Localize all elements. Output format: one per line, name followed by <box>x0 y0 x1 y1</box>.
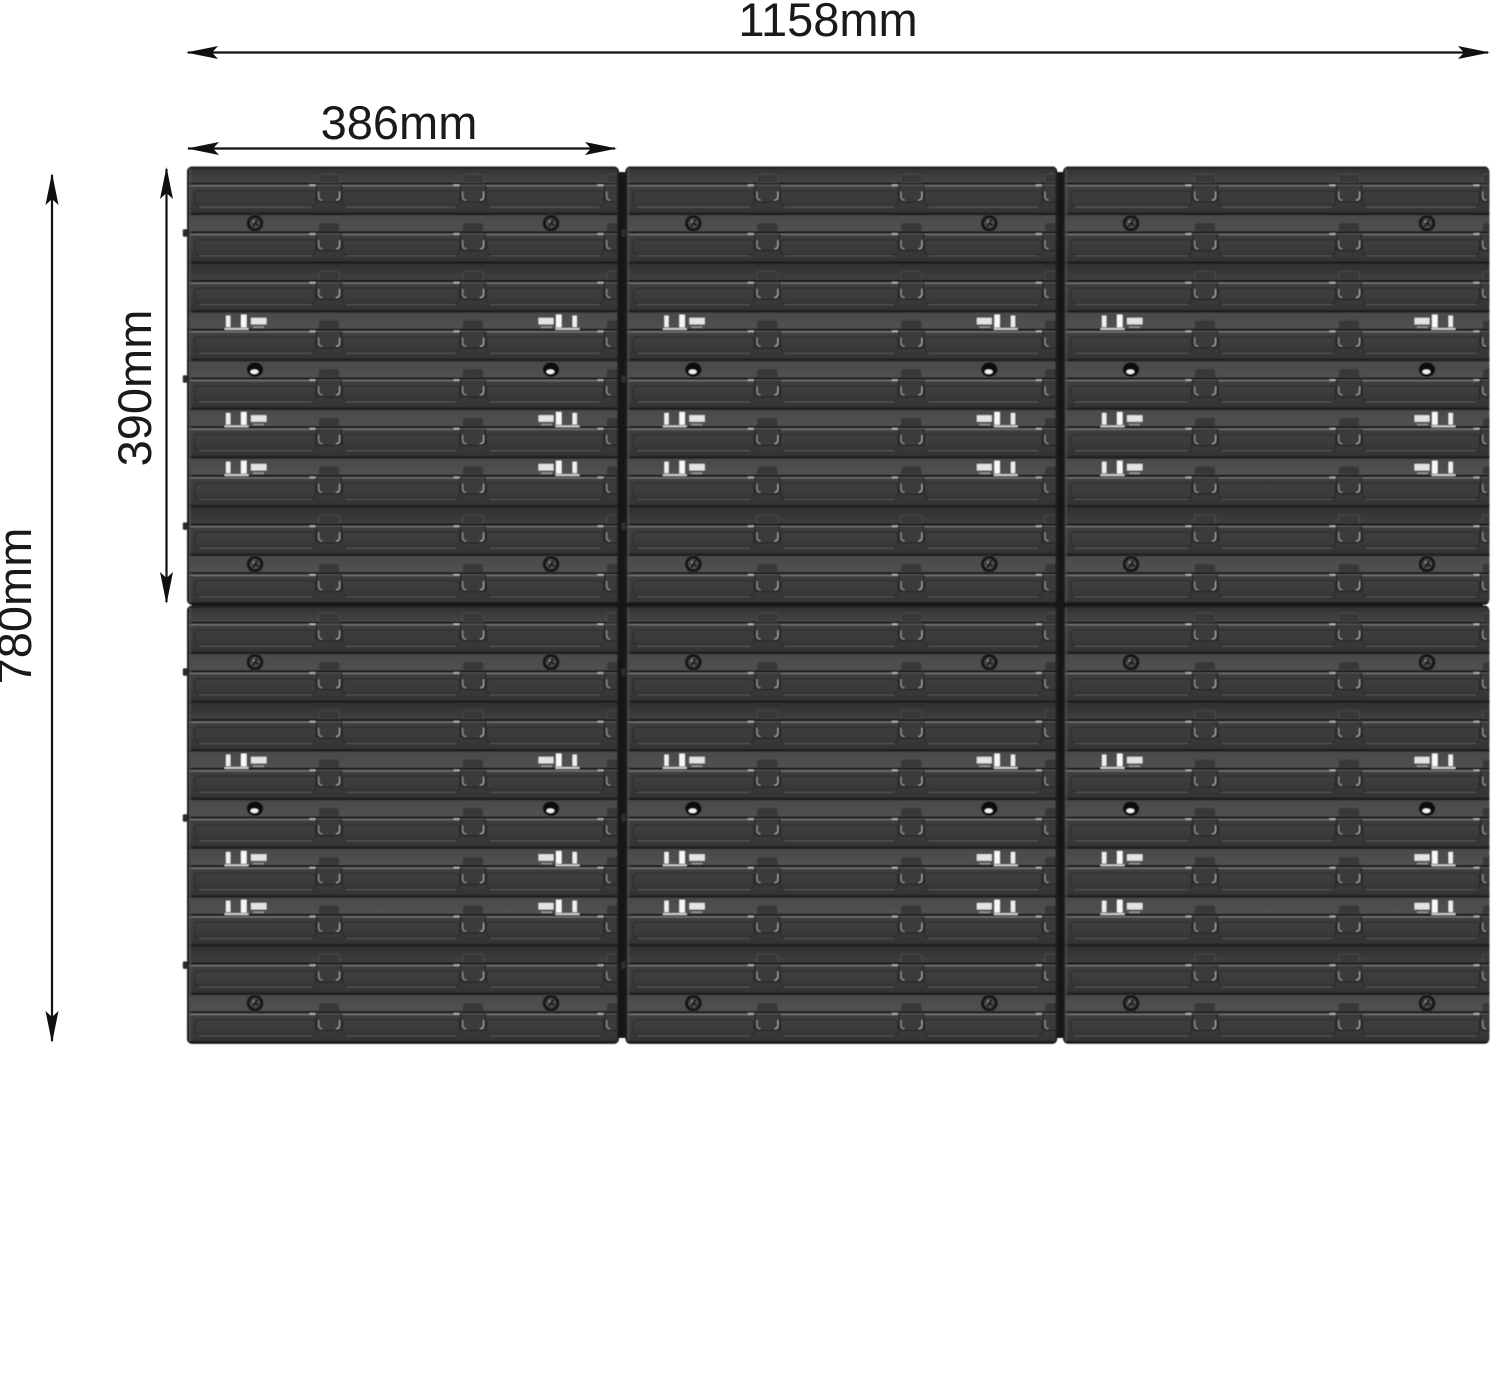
svg-text:1158mm: 1158mm <box>738 0 917 46</box>
svg-text:780mm: 780mm <box>0 528 41 685</box>
svg-text:386mm: 386mm <box>321 96 478 149</box>
svg-text:390mm: 390mm <box>108 310 161 467</box>
